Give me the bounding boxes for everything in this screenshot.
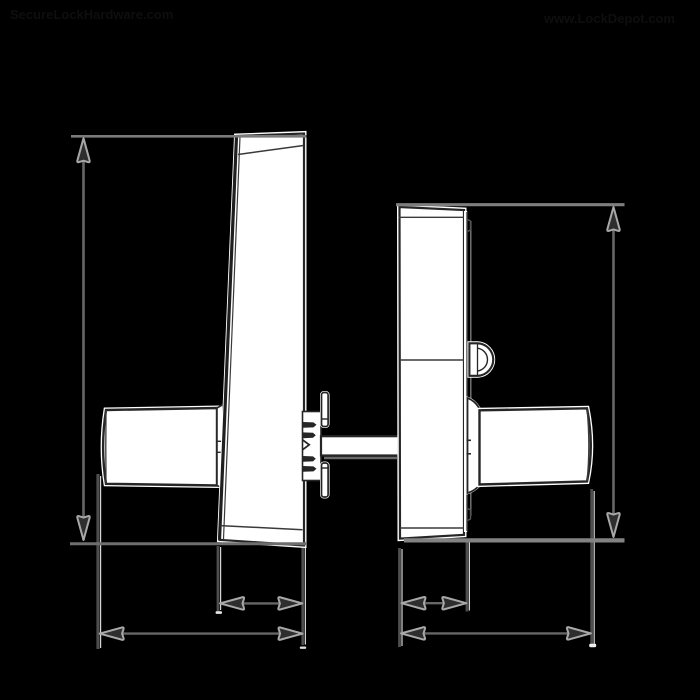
- svg-text:SecureLockHardware.com: SecureLockHardware.com: [10, 7, 173, 22]
- svg-text:www.LockDepot.com: www.LockDepot.com: [543, 11, 675, 26]
